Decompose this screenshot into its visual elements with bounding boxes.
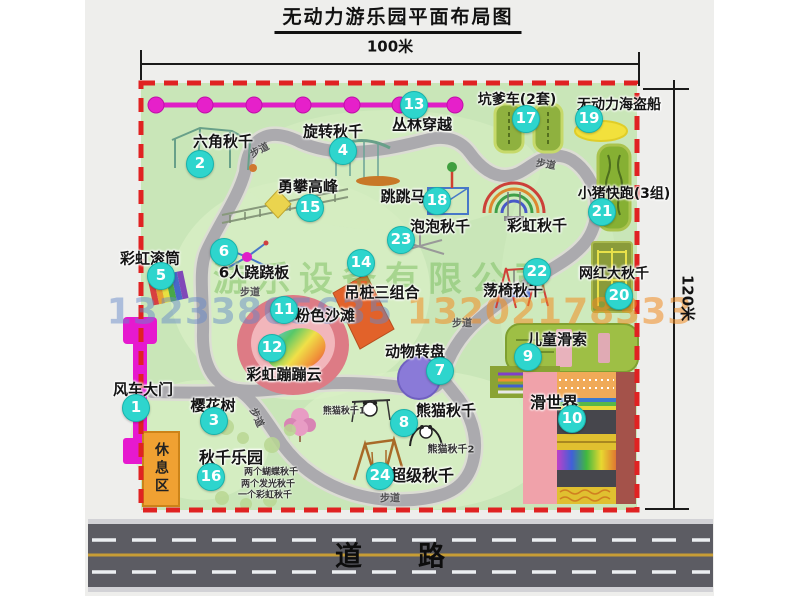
path-label: 步道 bbox=[380, 490, 400, 505]
attraction-badge-19: 19 bbox=[575, 105, 603, 133]
park-plan-screenshot: 无动力游乐园平面布局图 100米 120米 游乐设备有限公司 132338056… bbox=[0, 0, 800, 600]
attraction-badge-20: 20 bbox=[605, 282, 633, 310]
attraction-badge-9: 9 bbox=[514, 343, 542, 371]
width-dimension-label: 100米 bbox=[367, 36, 413, 57]
watermark-phone-2: 13202178333 bbox=[407, 292, 694, 333]
attraction-badge-18: 18 bbox=[423, 187, 451, 215]
attraction-badge-23: 23 bbox=[387, 226, 415, 254]
attraction-badge-8: 8 bbox=[390, 409, 418, 437]
attraction-badge-12: 12 bbox=[258, 334, 286, 362]
page-title: 无动力游乐园平面布局图 bbox=[274, 2, 521, 34]
attraction-badge-2: 2 bbox=[186, 150, 214, 178]
road-label: 道路 bbox=[335, 535, 501, 574]
attraction-badge-13: 13 bbox=[400, 91, 428, 119]
attraction-label-17: 坑爹车(2套) bbox=[478, 89, 557, 109]
attraction-label-4: 旋转秋千 bbox=[303, 121, 363, 142]
rest-area-label: 休息区 bbox=[151, 442, 171, 496]
attraction-badge-5: 5 bbox=[147, 262, 175, 290]
attraction-label-20: 网红大秋千 bbox=[579, 263, 649, 283]
attraction-badge-11: 11 bbox=[270, 296, 298, 324]
sub-label: 一个彩虹秋千 bbox=[238, 488, 292, 501]
attraction-label: 彩虹秋千 bbox=[507, 215, 567, 236]
attraction-badge-4: 4 bbox=[329, 137, 357, 165]
attraction-label-2: 六角秋千 bbox=[193, 131, 253, 152]
attraction-badge-3: 3 bbox=[200, 407, 228, 435]
attraction-badge-17: 17 bbox=[512, 105, 540, 133]
attraction-label-12: 彩虹蹦蹦云 bbox=[246, 364, 321, 385]
attraction-badge-7: 7 bbox=[426, 357, 454, 385]
path-label: 步道 bbox=[535, 154, 557, 172]
attraction-badge-24: 24 bbox=[366, 462, 394, 490]
attraction-badge-15: 15 bbox=[296, 194, 324, 222]
attraction-badge-6: 6 bbox=[210, 238, 238, 266]
attraction-badge-21: 21 bbox=[588, 198, 616, 226]
attraction-badge-1: 1 bbox=[122, 394, 150, 422]
attraction-badge-16: 16 bbox=[197, 463, 225, 491]
height-dimension-label: 120米 bbox=[678, 275, 699, 321]
attraction-badge-14: 14 bbox=[347, 249, 375, 277]
path-label: 步道 bbox=[452, 315, 472, 330]
attraction-badge-22: 22 bbox=[523, 258, 551, 286]
attraction-label-24: 超级秋千 bbox=[390, 462, 454, 486]
sub-label: 熊猫秋千1 bbox=[323, 404, 365, 417]
attraction-label-18: 跳跳马 bbox=[380, 186, 425, 207]
sub-label: 熊猫秋千2 bbox=[428, 441, 475, 456]
attraction-badge-10: 10 bbox=[558, 405, 586, 433]
path-label: 步道 bbox=[240, 284, 260, 299]
attraction-label-8: 熊猫秋千 bbox=[416, 400, 476, 421]
attraction-label-11: 粉色沙滩 bbox=[295, 305, 355, 326]
attraction-label-13: 丛林穿越 bbox=[392, 114, 452, 135]
attraction-label-14: 吊桩三组合 bbox=[344, 282, 419, 303]
attraction-label-23: 泡泡秋千 bbox=[410, 216, 470, 237]
attraction-label-21: 小猪快跑(3组) bbox=[578, 183, 671, 203]
